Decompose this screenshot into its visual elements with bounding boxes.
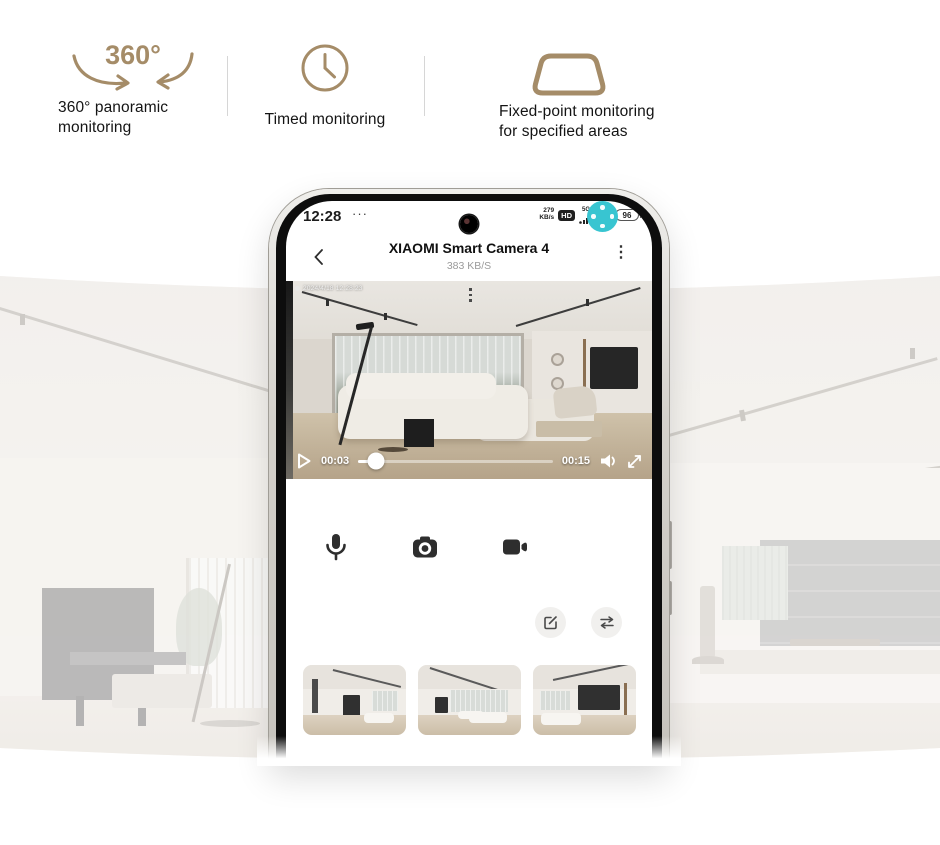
ptz-up-dot [600,205,605,210]
vertical-divider [227,56,228,116]
edit-button[interactable] [535,607,566,638]
feature-label-line2: monitoring [58,118,226,138]
video-track-spot [586,299,589,306]
phone-bottom-fade [257,736,681,766]
bg-speaker [700,586,715,658]
video-wall-circle [551,353,564,366]
record-button[interactable] [499,531,531,563]
app-bar: XIAOMI Smart Camera 4 383 KB/S ⋮ [286,237,652,282]
video-armchair [553,385,598,419]
ptz-left-dot [591,214,596,219]
ptz-right-dot [610,214,615,219]
bg-track-spot [910,348,915,359]
network-speed: 279 KB/s [539,208,554,222]
status-time: 12:28 [303,208,341,225]
camera-icon [411,535,439,559]
feature-fixed-point: Fixed-point monitoring for specified are… [499,40,714,142]
bg-floor-lamp-base [200,720,260,727]
microphone-icon [323,532,349,562]
vertical-divider [424,56,425,116]
ptz-direction-button[interactable] [587,201,618,232]
video-osd-timestamp: 2024/4/18 12:28:23 [295,285,363,292]
trapezoid-icon [525,50,613,98]
player-controls: 00:03 00:15 [286,446,652,476]
volume-icon[interactable] [599,453,618,469]
total-duration: 00:15 [562,455,590,467]
progress-bar[interactable] [358,460,553,463]
feature-label-line1: Fixed-point monitoring [499,102,714,122]
rotate-360-icon: 360° [58,40,208,98]
battery-icon: 96 [615,209,639,221]
bg-piano-leg [76,696,84,726]
bg-tv-console [700,650,940,674]
thumbnail-angle-2[interactable] [418,665,521,735]
feature-label-line1: 360° panoramic [58,98,226,118]
feature-label-line2: for specified areas [499,122,714,142]
bg-track-spot [20,314,25,325]
osd-timestamp-text: 2024/4/18 12:28:23 [303,285,363,292]
front-camera-punch-hole [460,215,478,233]
video-side-table [404,419,434,447]
switch-button[interactable] [591,607,622,638]
feature-label: 360° panoramic monitoring [58,98,226,138]
page: 360° 360° panoramic monitoring Timed mon… [0,0,940,845]
camera-title: XIAOMI Smart Camera 4 [286,240,652,256]
video-pendant-light [469,288,472,305]
feature-timed-monitoring: Timed monitoring [240,42,410,130]
thumbnail-angle-1[interactable] [303,665,406,735]
snapshot-button[interactable] [409,531,441,563]
swap-arrows-icon [599,616,615,629]
bg-speaker-base [692,656,724,664]
feature-label: Timed monitoring [240,110,410,130]
feature-360-panoramic: 360° 360° panoramic monitoring [58,40,226,138]
rotate-arrows-icon [64,52,202,98]
elapsed-time: 00:03 [321,455,349,467]
bg-soundbar [790,639,880,646]
feature-label: Fixed-point monitoring for specified are… [499,102,714,142]
ptz-down-dot [600,224,605,229]
video-camera-icon [501,537,529,557]
bg-right-window [722,546,788,620]
fullscreen-icon[interactable] [627,454,642,469]
edit-icon [543,615,558,630]
hd-badge: HD [558,210,575,222]
record-dot-icon [295,286,300,291]
status-more-dots: ··· [352,206,368,221]
clock-icon [299,42,351,94]
live-video-player[interactable]: 2024/4/18 12:28:23 00:03 00:15 [286,281,652,479]
talk-microphone-button[interactable] [320,531,352,563]
battery-percent: 96 [623,211,632,220]
video-track-spot [384,313,387,320]
play-icon[interactable] [296,452,312,470]
progress-knob[interactable] [367,453,384,470]
phone-mockup: 12:28 ··· 279 KB/s HD 5G [269,189,669,763]
video-tv [590,347,638,389]
video-track-spot [326,299,329,306]
bg-piano-keys [70,652,186,665]
stream-bitrate: 383 KB/S [286,260,652,272]
phone-screen: 12:28 ··· 279 KB/s HD 5G [286,201,652,763]
thumbnail-angle-3[interactable] [533,665,636,735]
network-speed-unit: KB/s [539,215,554,222]
more-menu-icon[interactable]: ⋮ [613,242,629,262]
video-coffee-table [536,421,602,437]
camera-angle-thumbnails [303,665,636,735]
